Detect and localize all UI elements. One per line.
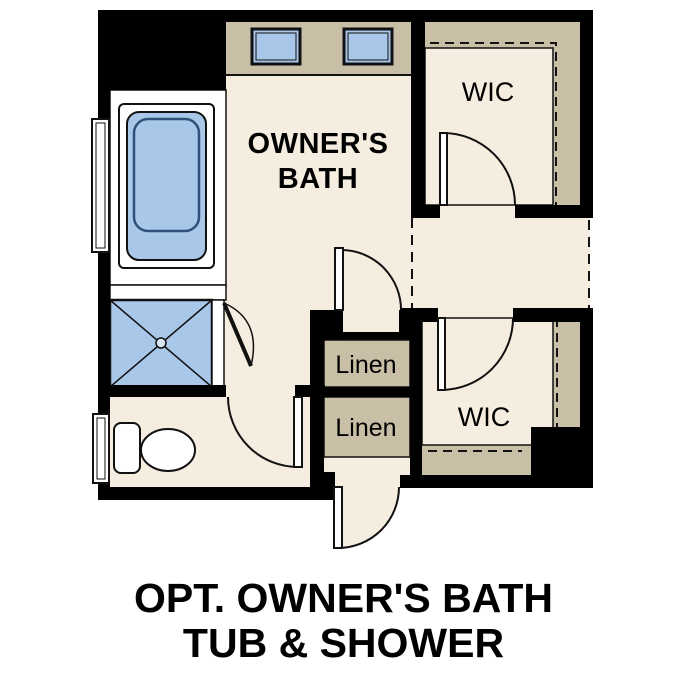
drawing-title-line1: OPT. OWNER'S BATH: [0, 576, 687, 621]
wic-upper-shelf-right: [553, 22, 580, 205]
wall: [411, 205, 440, 218]
shower-drain: [156, 338, 166, 348]
wic-lower-door-leaf: [438, 318, 445, 390]
wall: [310, 387, 422, 397]
wall: [98, 487, 335, 500]
toilet-bowl: [141, 429, 195, 471]
floor-plan-page: OWNER'S BATH WIC WIC Linen Linen OPT. OW…: [0, 0, 687, 687]
wall: [580, 10, 593, 218]
drawing-title: OPT. OWNER'S BATH TUB & SHOWER: [0, 576, 687, 666]
bathtub-basin: [134, 119, 199, 231]
owners-bath-label-line1: OWNER'S: [248, 128, 389, 160]
window-upper: [92, 119, 109, 252]
wall: [580, 308, 593, 427]
wic-upper-door-leaf: [440, 133, 447, 205]
owners-bath-label-line2: BATH: [278, 163, 358, 195]
drawing-title-line2: TUB & SHOWER: [0, 621, 687, 666]
toilet-tank: [114, 423, 140, 473]
wall: [320, 472, 335, 500]
wic-upper-label: WIC: [462, 77, 514, 107]
wall: [98, 385, 226, 397]
hall-door-leaf: [334, 487, 342, 548]
wic-lower-shelf-bottom: [422, 445, 531, 475]
linen-upper-label: Linen: [335, 351, 396, 379]
vanity-sink-left: [252, 29, 300, 64]
wall: [411, 10, 425, 218]
wic-lower-label: WIC: [458, 402, 510, 432]
vanity-sink-right: [344, 29, 392, 64]
shower-curb: [212, 300, 224, 387]
wall: [311, 310, 343, 340]
toilet-door-leaf: [294, 397, 302, 467]
wall: [400, 475, 593, 488]
window-lower: [93, 414, 109, 483]
wall: [295, 385, 325, 397]
tub-ledge: [110, 285, 226, 300]
linen-door-leaf: [335, 248, 343, 310]
wall: [226, 10, 593, 22]
linen-lower-label: Linen: [335, 414, 396, 442]
wall: [515, 205, 593, 218]
wall: [98, 10, 226, 90]
